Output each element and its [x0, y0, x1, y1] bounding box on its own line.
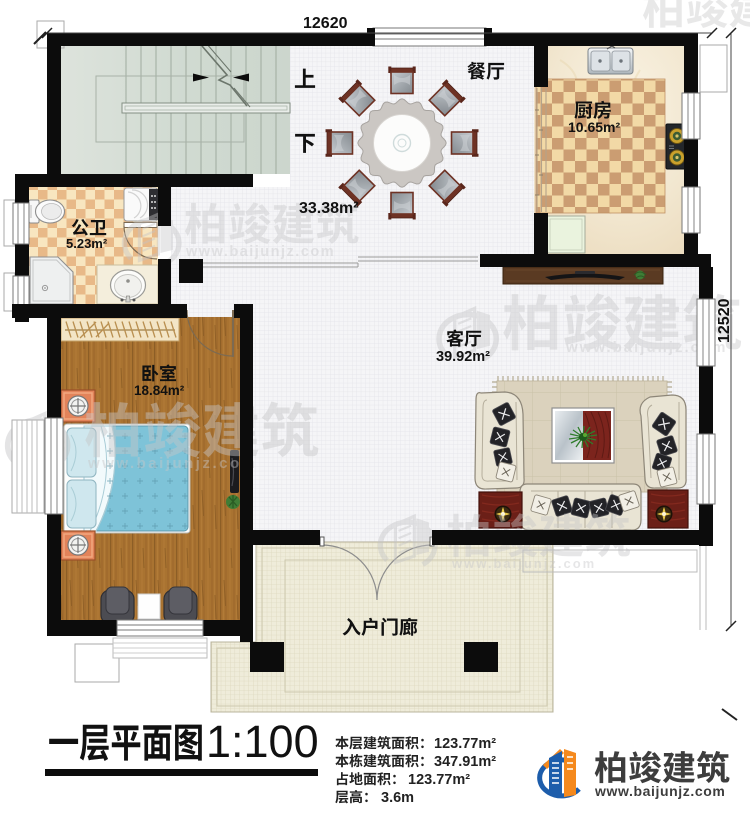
svg-text:18.84m²: 18.84m² [134, 383, 185, 398]
svg-text:www.baijunjz.com: www.baijunjz.com [185, 244, 335, 260]
svg-text:12620: 12620 [303, 15, 348, 32]
svg-text:123.77m²: 123.77m² [408, 772, 470, 788]
svg-text:www.baijunjz.com: www.baijunjz.com [594, 783, 725, 799]
svg-text:www.baijunjz.com: www.baijunjz.com [451, 556, 596, 571]
svg-text:5.23m²: 5.23m² [66, 236, 108, 251]
svg-text:www.baijunjz.com: www.baijunjz.com [87, 455, 257, 472]
svg-text:1:100: 1:100 [206, 716, 319, 767]
svg-text:3.6m: 3.6m [381, 790, 414, 806]
svg-text:33.38m²: 33.38m² [299, 200, 359, 217]
svg-text:39.92m²: 39.92m² [436, 349, 490, 365]
svg-text:12520: 12520 [716, 298, 733, 343]
svg-text:347.91m²: 347.91m² [434, 754, 496, 770]
svg-text:10.65m²: 10.65m² [568, 119, 620, 135]
svg-text:123.77m²: 123.77m² [434, 736, 496, 752]
